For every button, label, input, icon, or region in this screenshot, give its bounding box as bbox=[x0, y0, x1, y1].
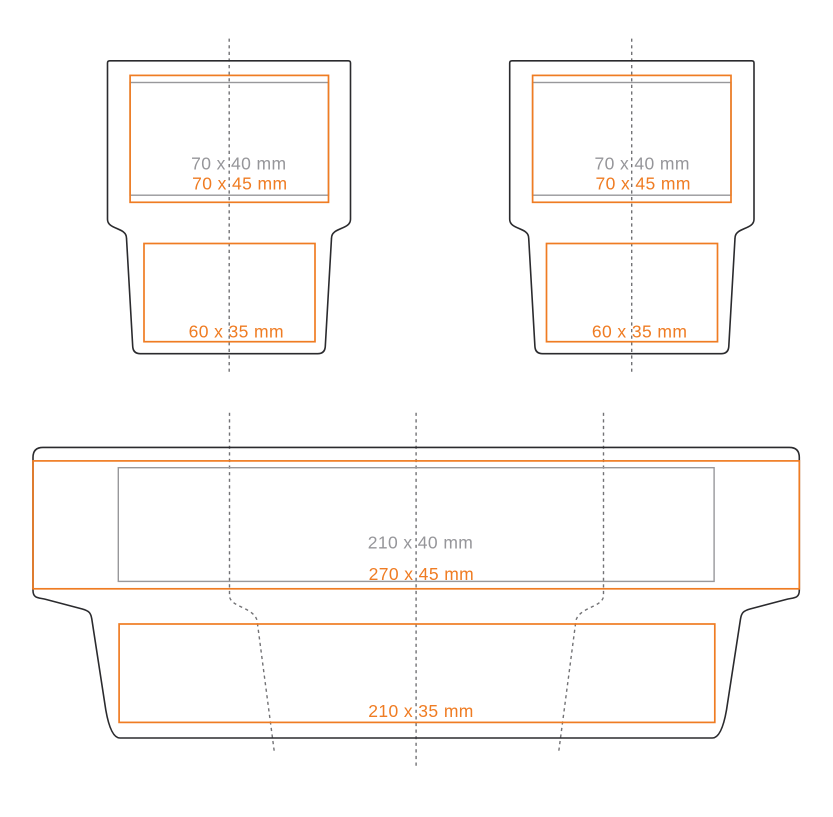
svg-text:60 x 35 mm: 60 x 35 mm bbox=[592, 322, 687, 342]
svg-text:70 x 40 mm: 70 x 40 mm bbox=[594, 154, 689, 174]
svg-text:270 x 45 mm: 270 x 45 mm bbox=[369, 564, 475, 584]
svg-text:70 x 40 mm: 70 x 40 mm bbox=[191, 154, 286, 174]
svg-text:70 x 45 mm: 70 x 45 mm bbox=[192, 174, 287, 194]
svg-text:60 x 35 mm: 60 x 35 mm bbox=[189, 322, 284, 342]
svg-text:210 x 40 mm: 210 x 40 mm bbox=[368, 532, 474, 552]
svg-text:210 x 35 mm: 210 x 35 mm bbox=[368, 701, 474, 721]
svg-text:70 x 45 mm: 70 x 45 mm bbox=[595, 174, 690, 194]
